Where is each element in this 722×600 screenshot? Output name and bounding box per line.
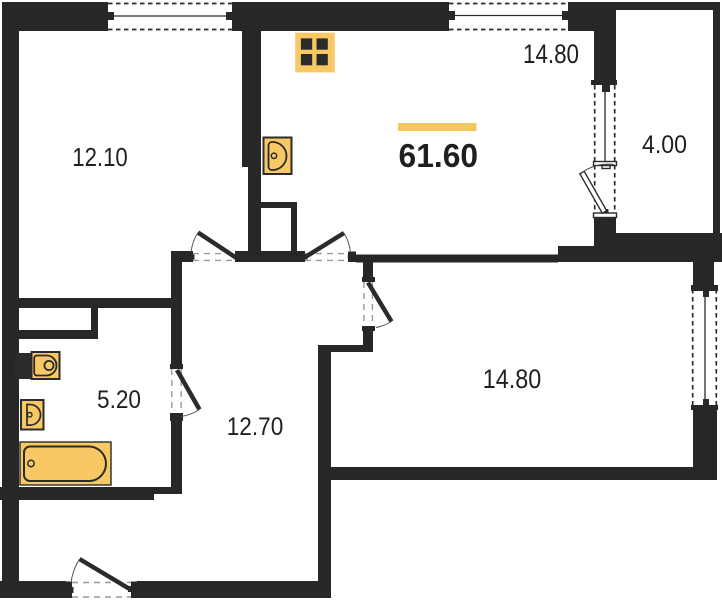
svg-text:5.20: 5.20 [97,386,141,414]
svg-text:12.10: 12.10 [72,142,128,172]
svg-text:12.70: 12.70 [227,413,284,441]
svg-text:14.80: 14.80 [483,364,542,394]
svg-text:61.60: 61.60 [399,138,479,175]
svg-text:14.80: 14.80 [523,39,579,69]
svg-text:4.00: 4.00 [642,131,687,159]
